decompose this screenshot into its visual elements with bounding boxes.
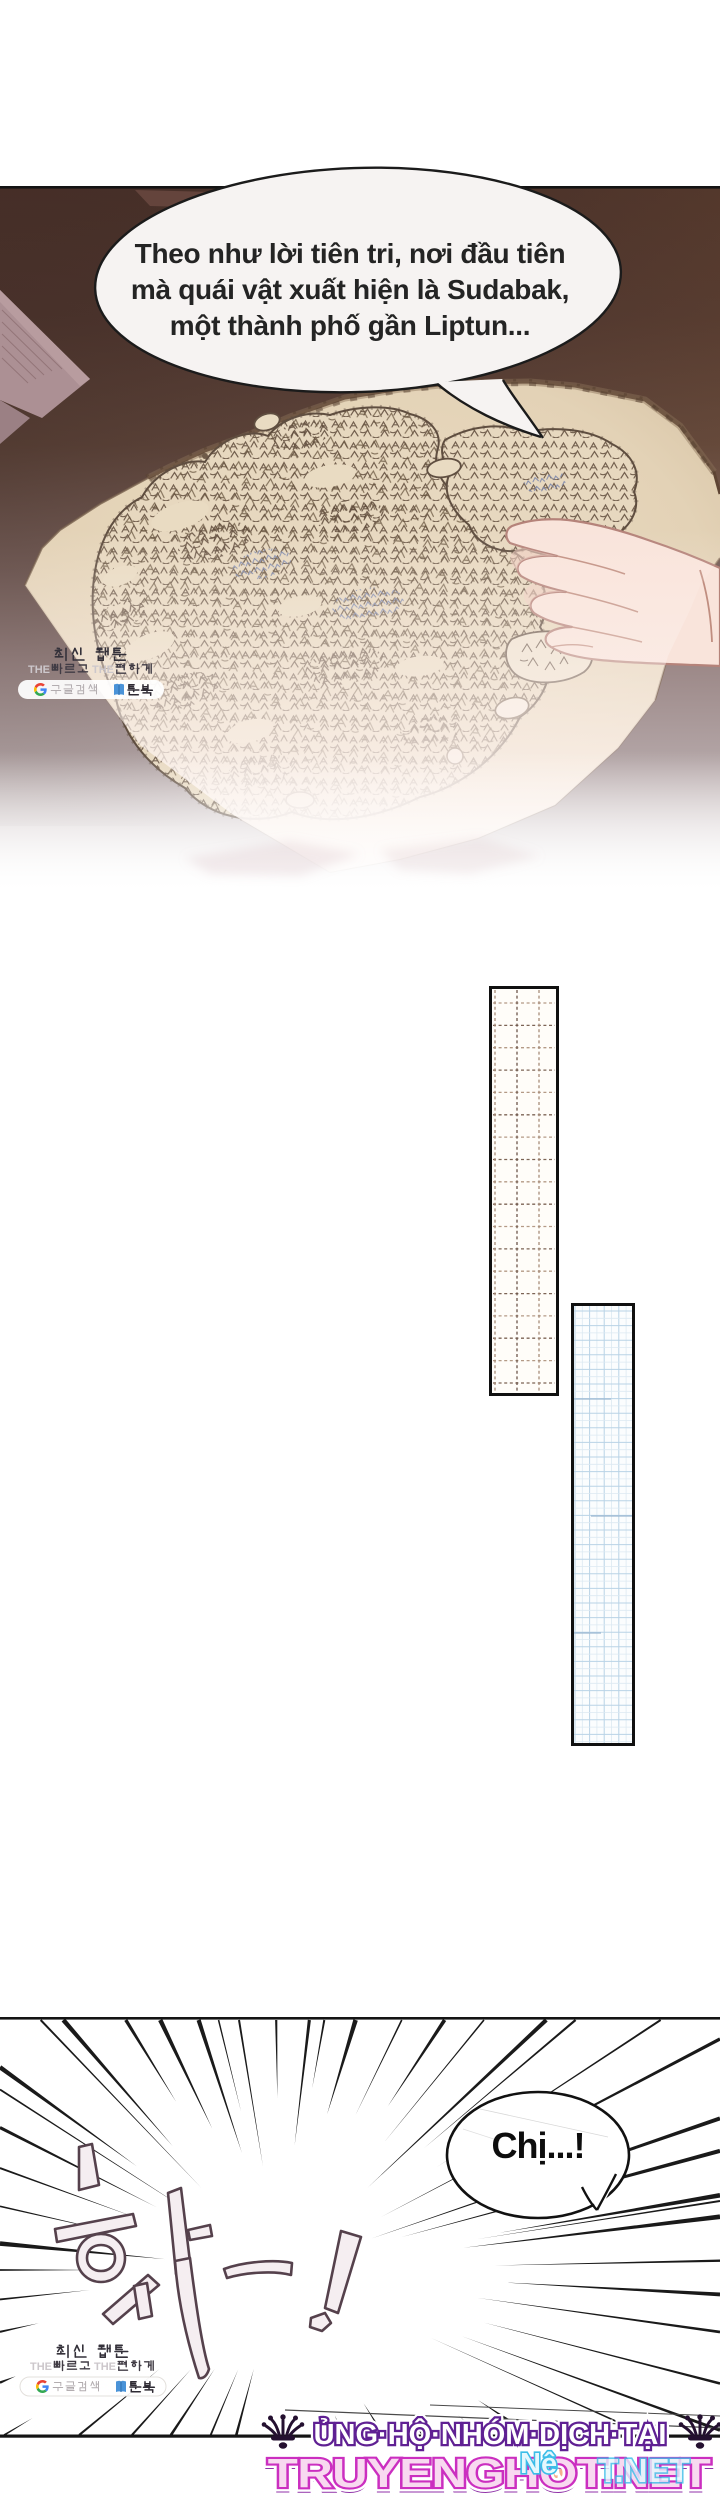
svg-text:THE: THE bbox=[92, 664, 114, 676]
svg-text:THE: THE bbox=[30, 2361, 52, 2373]
svg-text:ỦNG·HỘ·NHÓM·DỊCH·TẠI: ỦNG·HỘ·NHÓM·DỊCH·TẠI bbox=[314, 2417, 667, 2451]
svg-text:THE: THE bbox=[94, 2361, 116, 2373]
svg-text:Nê: Nê bbox=[520, 2448, 557, 2480]
svg-text:THE: THE bbox=[28, 664, 50, 676]
svg-text:T.NET: T.NET bbox=[598, 2452, 690, 2489]
